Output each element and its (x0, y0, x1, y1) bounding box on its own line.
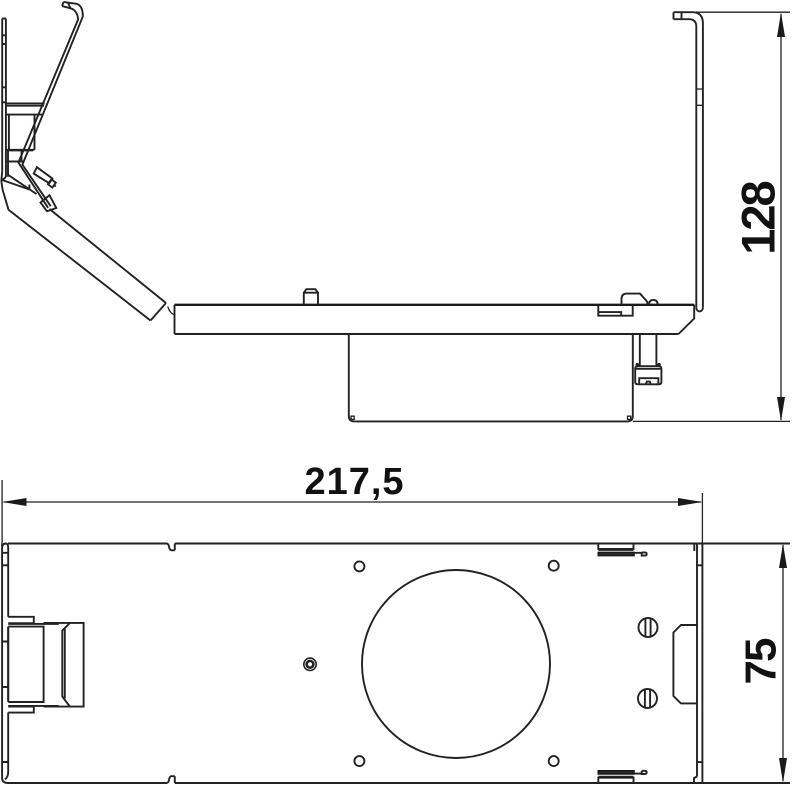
svg-text:75: 75 (737, 638, 786, 684)
svg-text:128: 128 (732, 182, 785, 255)
svg-text:217,5: 217,5 (304, 461, 404, 503)
